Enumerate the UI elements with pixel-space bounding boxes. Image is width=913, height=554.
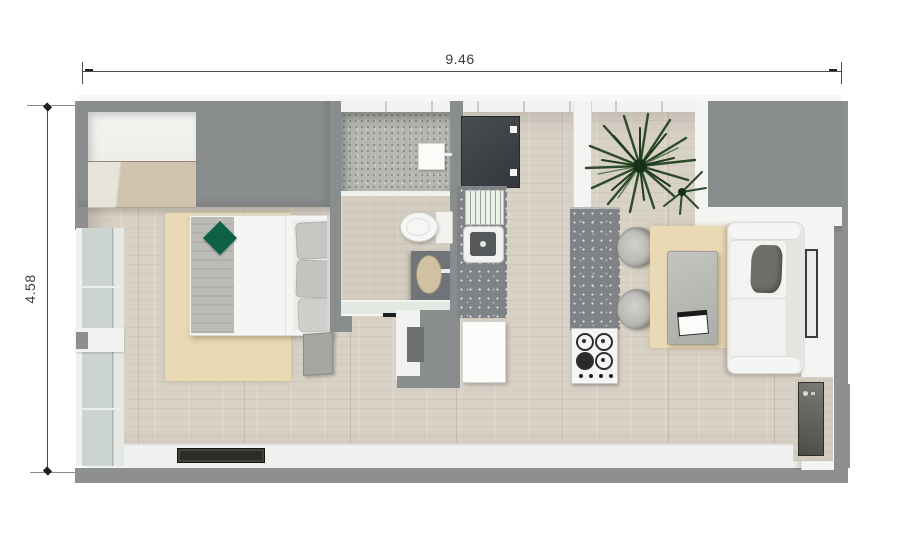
bed-crease-line xyxy=(285,216,286,334)
left-dimension-arrow-top xyxy=(43,102,52,111)
utility-cabinet-handle xyxy=(803,391,808,396)
stove-knob-2 xyxy=(589,374,593,378)
vanity-basin xyxy=(416,255,442,294)
window-mullion-lower xyxy=(80,408,120,410)
top-dimension-arrow-left xyxy=(85,69,93,71)
doormat xyxy=(177,448,265,463)
wall-radiator xyxy=(805,249,818,338)
stove-burner-2 xyxy=(595,333,613,351)
sofa xyxy=(727,222,804,374)
drainboard xyxy=(465,190,504,225)
left-dimension-ext-bottom xyxy=(30,472,76,473)
top-dimension-line xyxy=(82,71,842,72)
entry-threshold-mark xyxy=(383,313,397,317)
refrigerator-handle-bottom xyxy=(510,169,517,176)
sofa-pillow xyxy=(750,244,783,293)
bathroom-left-wall xyxy=(330,101,341,312)
kitchen-sink xyxy=(463,226,504,263)
closet-niche xyxy=(88,112,196,207)
left-dimension-line xyxy=(47,105,48,473)
palm-leaves-icon xyxy=(578,108,710,226)
window-sill-notch xyxy=(76,332,88,349)
stove-burner-4 xyxy=(595,352,613,370)
left-dimension-arrow-bottom xyxy=(43,466,52,475)
entry-partition-horizontal xyxy=(397,376,460,388)
top-dimension-tick-right xyxy=(841,62,842,84)
floorplan-canvas: 9.46 4.58 xyxy=(0,0,913,554)
top-dimension-tick-left xyxy=(82,62,83,84)
wall-mass-top-right xyxy=(708,101,842,207)
outer-wall-right-jog xyxy=(833,384,850,468)
entry-open-door xyxy=(462,321,506,383)
stove-knob-1 xyxy=(579,374,583,378)
kitchen-sink-drain xyxy=(480,241,486,247)
gas-stove xyxy=(571,328,618,384)
potted-palm xyxy=(578,108,710,226)
outer-wall-bottom xyxy=(75,468,848,483)
entry-partition-inset xyxy=(407,327,424,362)
book-on-table xyxy=(677,310,709,337)
kitchen-sink-basin xyxy=(470,232,496,256)
stove-burner-1 xyxy=(576,333,594,351)
stove-burner-3 xyxy=(576,352,594,370)
toilet-bowl xyxy=(400,212,438,242)
shower-unit xyxy=(418,143,445,170)
top-dimension-arrow-right xyxy=(829,69,837,71)
stove-knob-4 xyxy=(609,374,613,378)
sofa-armrest-top xyxy=(729,223,800,240)
stove-knob-3 xyxy=(599,374,603,378)
left-dimension-label: 4.58 xyxy=(22,259,38,319)
top-dimension-label: 9.46 xyxy=(420,51,500,67)
refrigerator-handle-top xyxy=(510,126,517,133)
toilet-seat-line xyxy=(406,218,430,236)
utility-cabinet-lock xyxy=(811,392,815,395)
nightstand xyxy=(303,332,333,376)
sofa-armrest-bottom xyxy=(729,356,800,373)
vanity-faucet xyxy=(441,269,450,273)
utility-cabinet xyxy=(798,382,824,456)
refrigerator xyxy=(461,116,520,188)
left-window-wall xyxy=(76,228,124,466)
sofa-seat-cushion-2 xyxy=(729,298,787,357)
window-mullion-upper xyxy=(80,286,120,288)
shower-arm xyxy=(444,153,452,156)
closet-floor xyxy=(88,161,196,208)
